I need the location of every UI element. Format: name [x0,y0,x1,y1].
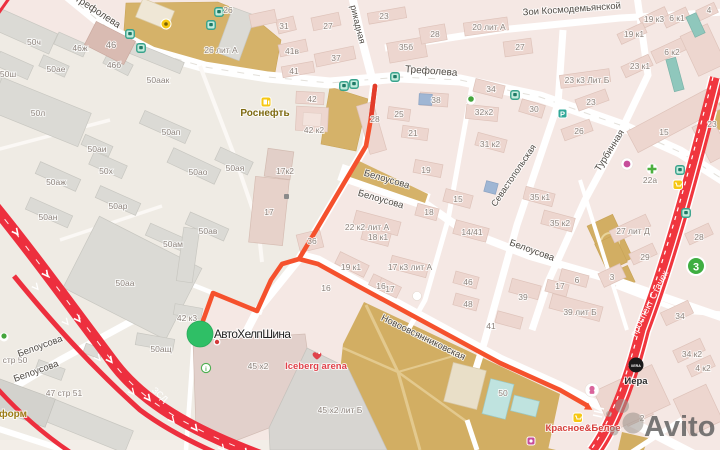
svg-text:6 к1: 6 к1 [669,13,685,23]
svg-text:38: 38 [431,95,441,105]
svg-text:35б: 35б [399,42,413,52]
svg-text:26 лит А: 26 лит А [204,45,238,55]
svg-text:50ар: 50ар [109,201,128,211]
svg-text:18 к1: 18 к1 [368,232,389,242]
svg-text:14/41: 14/41 [461,227,483,237]
svg-text:50: 50 [498,388,508,398]
svg-text:6 к2: 6 к2 [664,47,680,57]
svg-text:19 к1: 19 к1 [624,29,645,39]
svg-text:28: 28 [694,232,704,242]
svg-text:23: 23 [586,97,596,107]
svg-text:6: 6 [575,275,580,285]
svg-text:41: 41 [486,321,496,331]
svg-text:29: 29 [640,252,650,262]
svg-text:50аа: 50аа [116,278,135,288]
svg-text:48: 48 [463,299,473,309]
svg-text:23: 23 [379,11,389,21]
svg-text:22 к2 лит А: 22 к2 лит А [345,222,390,232]
svg-text:16: 16 [321,283,331,293]
svg-text:35 к2: 35 к2 [550,218,571,228]
svg-text:34: 34 [486,84,496,94]
svg-text:23 к3 Лит Б: 23 к3 Лит Б [565,75,610,85]
svg-text:16: 16 [376,281,386,291]
svg-text:3: 3 [610,272,615,282]
svg-text:IIERA: IIERA [631,364,641,368]
svg-text:Красное&Белое: Красное&Белое [546,423,621,434]
svg-text:50ам: 50ам [163,239,183,249]
svg-text:42 к3: 42 к3 [177,313,198,323]
svg-text:50ш: 50ш [0,69,16,79]
svg-text:27: 27 [323,21,333,31]
svg-text:34: 34 [675,311,685,321]
svg-text:46: 46 [106,40,117,51]
svg-text:форм: форм [0,408,27,420]
svg-text:50ап: 50ап [162,127,181,137]
svg-text:46: 46 [463,277,473,287]
svg-text:22а: 22а [643,175,657,185]
svg-text:3: 3 [693,262,699,274]
svg-text:45 х2 лит Б: 45 х2 лит Б [318,405,363,415]
svg-text:28: 28 [370,114,380,124]
svg-text:26: 26 [223,5,233,15]
svg-text:50аж: 50аж [46,177,66,187]
svg-text:27: 27 [515,42,525,52]
svg-text:4 к2: 4 к2 [695,363,711,373]
svg-text:Iceberg arena: Iceberg arena [285,361,347,372]
svg-text:23: 23 [707,119,717,129]
svg-text:41: 41 [289,66,299,76]
svg-text:21: 21 [408,128,418,138]
svg-text:25: 25 [394,109,404,119]
svg-text:17: 17 [385,284,395,294]
svg-text:39: 39 [518,292,528,302]
svg-text:32х2: 32х2 [475,107,494,117]
svg-text:50ащ: 50ащ [150,344,171,354]
svg-text:41в: 41в [285,46,299,56]
svg-text:36: 36 [307,236,317,246]
svg-text:47 стр 51: 47 стр 51 [46,388,83,398]
svg-text:15: 15 [659,127,669,137]
svg-text:46ж: 46ж [72,43,87,53]
svg-text:17к2: 17к2 [276,166,294,176]
svg-text:42 к2: 42 к2 [304,125,325,135]
svg-text:50х: 50х [99,166,113,176]
svg-text:15: 15 [453,194,463,204]
svg-text:Иера: Иера [624,376,648,387]
svg-text:17: 17 [555,281,565,291]
svg-text:30: 30 [529,104,539,114]
svg-text:35 к1: 35 к1 [530,192,551,202]
svg-text:50ае: 50ае [47,64,66,74]
svg-text:27 лит Д: 27 лит Д [616,226,650,236]
svg-text:17: 17 [264,207,274,217]
svg-text:4: 4 [707,5,712,15]
svg-text:50ая: 50ая [226,163,245,173]
svg-text:50ч: 50ч [27,37,41,47]
svg-text:50л: 50л [31,108,45,118]
svg-text:17 к3 лит А: 17 к3 лит А [388,262,433,272]
svg-text:28: 28 [430,29,440,39]
svg-text:39 лит Б: 39 лит Б [563,307,597,317]
svg-text:P: P [560,109,565,118]
svg-text:34 к2: 34 к2 [682,349,703,359]
svg-text:19 к3: 19 к3 [644,14,665,24]
svg-text:42: 42 [307,94,317,104]
svg-text:50аак: 50аак [147,75,170,85]
svg-text:20 лит А: 20 лит А [472,22,506,32]
svg-text:50ао: 50ао [189,167,208,177]
svg-text:19 к1: 19 к1 [341,262,362,272]
svg-text:37: 37 [331,53,341,63]
svg-text:23 к1: 23 к1 [630,61,651,71]
svg-text:31: 31 [279,21,289,31]
svg-text:18: 18 [424,207,434,217]
svg-text:Роснефть: Роснефть [240,107,289,119]
svg-text:19: 19 [421,165,431,175]
svg-text:26: 26 [574,126,584,136]
svg-text:45 х2: 45 х2 [248,361,269,371]
svg-text:Avito: Avito [644,411,715,443]
svg-text:50аи: 50аи [88,144,107,154]
svg-text:АвтоХелпШина: АвтоХелпШина [214,327,291,341]
svg-text:46б: 46б [107,60,121,70]
svg-text:31 к2: 31 к2 [480,139,501,149]
svg-text:50ав: 50ав [199,226,218,236]
svg-text:50ан: 50ан [39,212,58,222]
